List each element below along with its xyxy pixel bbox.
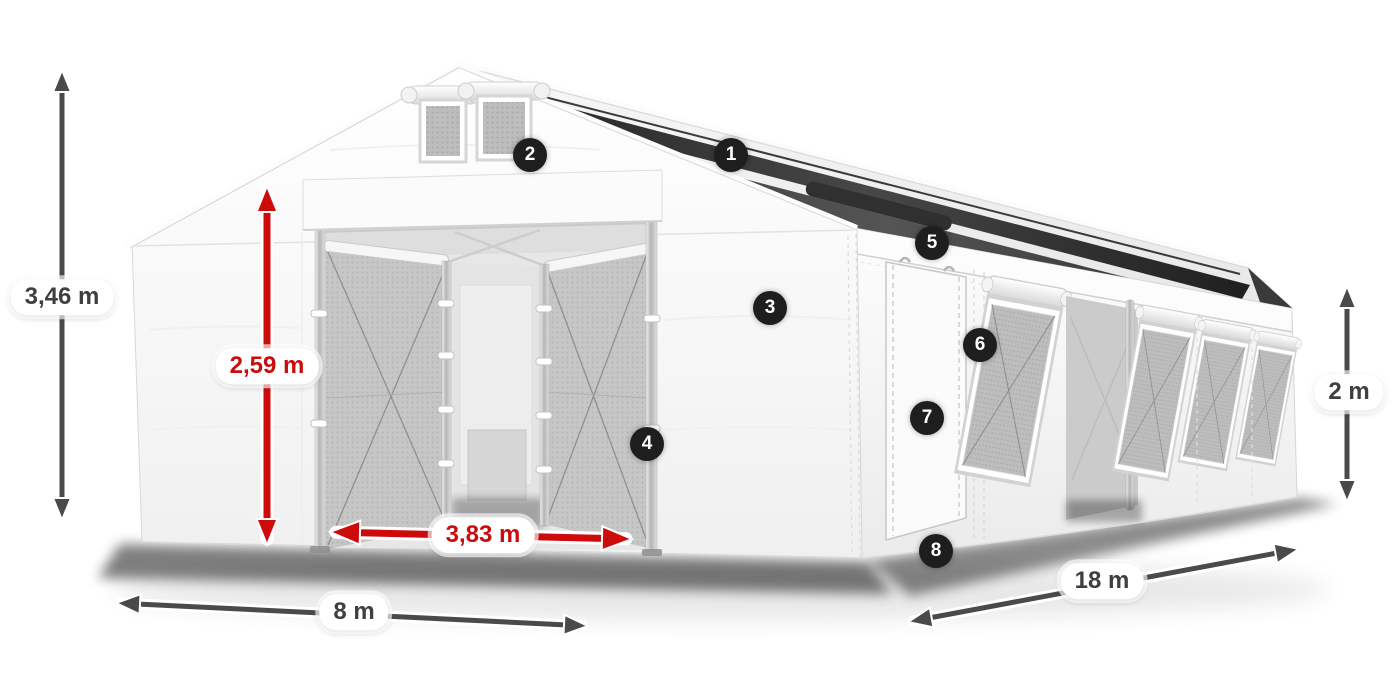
dimension-side-height-label: 2 m: [1314, 374, 1383, 410]
interior-mesh-panel-right: [545, 247, 650, 548]
callout-badge-8[interactable]: 8: [919, 534, 953, 568]
side-door: [886, 258, 966, 540]
callout-badge-3[interactable]: 3: [753, 291, 787, 325]
interior-mesh-panel-left: [326, 248, 448, 549]
entrance-header: [303, 170, 662, 230]
dimension-width-label: 8 m: [319, 594, 388, 630]
interior-far: [452, 263, 544, 528]
dimension-entrance-width-label: 3,83 m: [432, 517, 535, 553]
callout-badge-7[interactable]: 7: [910, 401, 944, 435]
dimension-length-label: 18 m: [1061, 563, 1144, 599]
callout-badge-4[interactable]: 4: [630, 427, 664, 461]
dimension-entrance-height-label: 2,59 m: [216, 348, 319, 384]
callout-badge-5[interactable]: 5: [915, 226, 949, 260]
tent-illustration: [0, 0, 1400, 700]
dimension-total-height-label: 3,46 m: [11, 279, 114, 315]
callout-badge-1[interactable]: 1: [714, 138, 748, 172]
callout-badge-6[interactable]: 6: [963, 328, 997, 362]
callout-badge-2[interactable]: 2: [513, 138, 547, 172]
entrance: [310, 221, 662, 556]
tent-dimension-diagram: 3,46 m 2,59 m 3,83 m 8 m 18 m 2 m 1 2 3 …: [0, 0, 1400, 700]
